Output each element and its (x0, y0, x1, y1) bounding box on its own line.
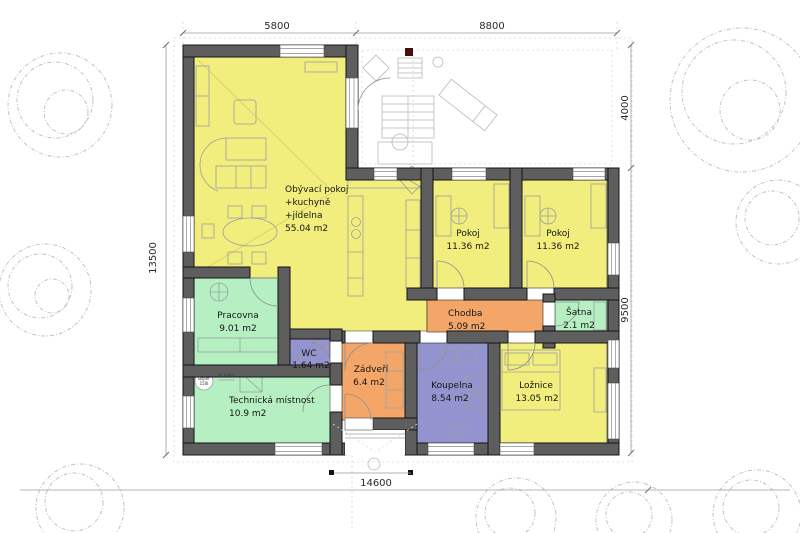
window (608, 243, 619, 275)
label-koupelna-area: 8.54 m2 (431, 394, 468, 404)
window (183, 396, 194, 428)
label-zadveri-area: 6.4 m2 (353, 378, 385, 388)
window (608, 383, 619, 439)
dim-top-left: 5800 (264, 21, 289, 32)
floor-plan-canvas: Obývací pokoj +kuchyně +jídelna 55.04 m2… (0, 0, 800, 533)
window (183, 298, 194, 332)
window (183, 216, 194, 252)
label-pokoj-2: Pokoj (546, 229, 570, 239)
window (452, 168, 486, 180)
label-wc-area: 1.64 m2 (292, 361, 329, 371)
label-el-kotel: El. kotel (218, 373, 234, 378)
label-loznice: Ložnice (519, 381, 553, 391)
dim-bottom: 14600 (360, 478, 392, 489)
window (428, 443, 474, 455)
label-koupelna: Koupelna (431, 381, 473, 391)
label-satna-area: 2.1 m2 (563, 321, 595, 331)
label-wc: WC (301, 349, 316, 359)
label-boiler-2: 150l (200, 381, 209, 386)
window (573, 168, 605, 180)
dim-right-upper: 4000 (620, 95, 631, 120)
label-obyvaci-jidelna: +jídelna (285, 211, 323, 221)
terrace-door-window (346, 78, 358, 128)
window (500, 443, 534, 455)
label-pokoj-1: Pokoj (456, 229, 480, 239)
window (608, 340, 619, 368)
label-pracovna-area: 9.01 m2 (219, 324, 256, 334)
label-pokoj-2-area: 11.36 m2 (536, 242, 579, 252)
label-technicka-area: 10.9 m2 (229, 409, 266, 419)
window (275, 443, 322, 455)
label-obyvaci-kuchyne: +kuchyně (285, 198, 331, 208)
terrace-marker (405, 48, 413, 56)
label-satna: Šatna (566, 306, 592, 318)
label-zadveri: Zádveří (354, 365, 389, 375)
room-koupelna (417, 343, 488, 443)
window (280, 45, 324, 57)
dim-left: 13500 (148, 242, 159, 274)
dim-right-lower: 9500 (620, 297, 631, 322)
label-obyvaci-pokoj: Obývací pokoj (285, 185, 348, 195)
label-loznice-area: 13.05 m2 (515, 394, 558, 404)
label-technicka: Technická místnost (228, 396, 315, 406)
label-pracovna: Pracovna (217, 311, 258, 321)
room-loznice (500, 343, 607, 443)
porch-post-right (408, 470, 413, 475)
label-chodba: Chodba (448, 309, 482, 319)
label-obyvaci-area: 55.04 m2 (285, 224, 328, 234)
label-chodba-area: 5.09 m2 (448, 322, 485, 332)
dim-top-right: 8800 (479, 21, 504, 32)
porch-post-left (329, 470, 334, 475)
window (374, 168, 397, 180)
label-pokoj-1-area: 11.36 m2 (446, 242, 489, 252)
